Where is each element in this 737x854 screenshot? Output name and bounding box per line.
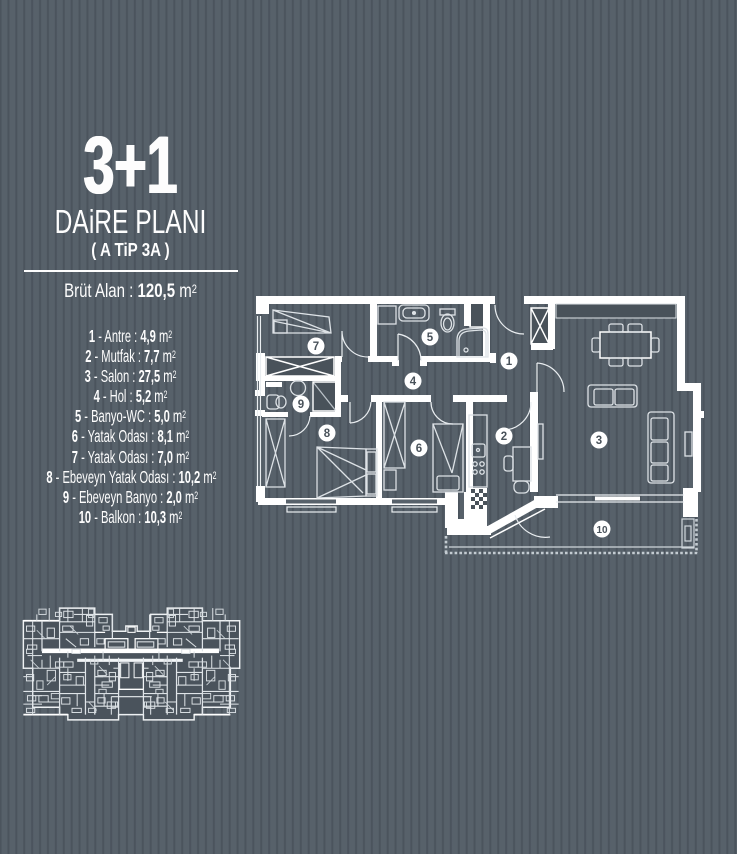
svg-text:3: 3: [596, 435, 602, 447]
svg-text:7: 7: [313, 341, 319, 353]
svg-text:2: 2: [501, 431, 507, 443]
svg-text:6: 6: [416, 443, 422, 455]
svg-text:5: 5: [427, 332, 434, 344]
svg-text:9: 9: [298, 399, 304, 411]
svg-text:10: 10: [596, 525, 608, 536]
svg-text:1: 1: [506, 356, 513, 368]
svg-text:8: 8: [324, 428, 331, 440]
svg-text:4: 4: [410, 376, 417, 388]
